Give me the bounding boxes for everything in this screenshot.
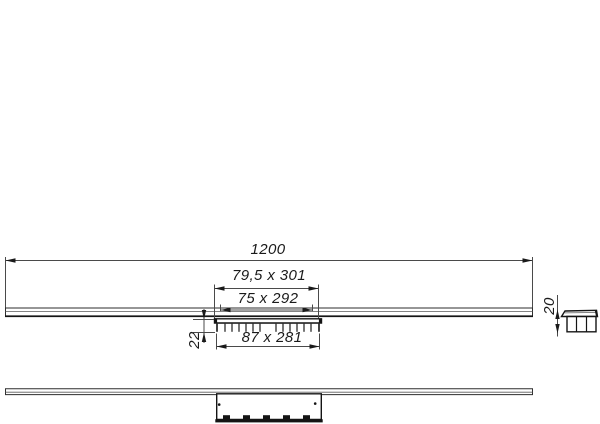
drawing-linework: [0, 0, 600, 424]
bottom-view: [6, 389, 533, 423]
dim-label-profile-height: 20: [542, 297, 558, 315]
drain-body-bottom: [215, 394, 322, 423]
trap-flange: [215, 319, 322, 323]
dim-label-trap-depth: 22: [187, 331, 203, 349]
dim-label-overall-length: 1200: [238, 242, 298, 258]
dim-label-body: 87 x 281: [220, 330, 324, 346]
dim-label-insert: 75 x 292: [216, 291, 320, 307]
technical-drawing-canvas: 1200 79,5 x 301 75 x 292 87 x 281 22 20: [0, 0, 600, 424]
end-view-cover: [562, 310, 598, 316]
end-view: [555, 295, 597, 337]
dim-label-cover-plate: 79,5 x 301: [217, 268, 321, 284]
end-view-channel: [567, 317, 596, 332]
channel-profile-front: [5, 308, 533, 317]
